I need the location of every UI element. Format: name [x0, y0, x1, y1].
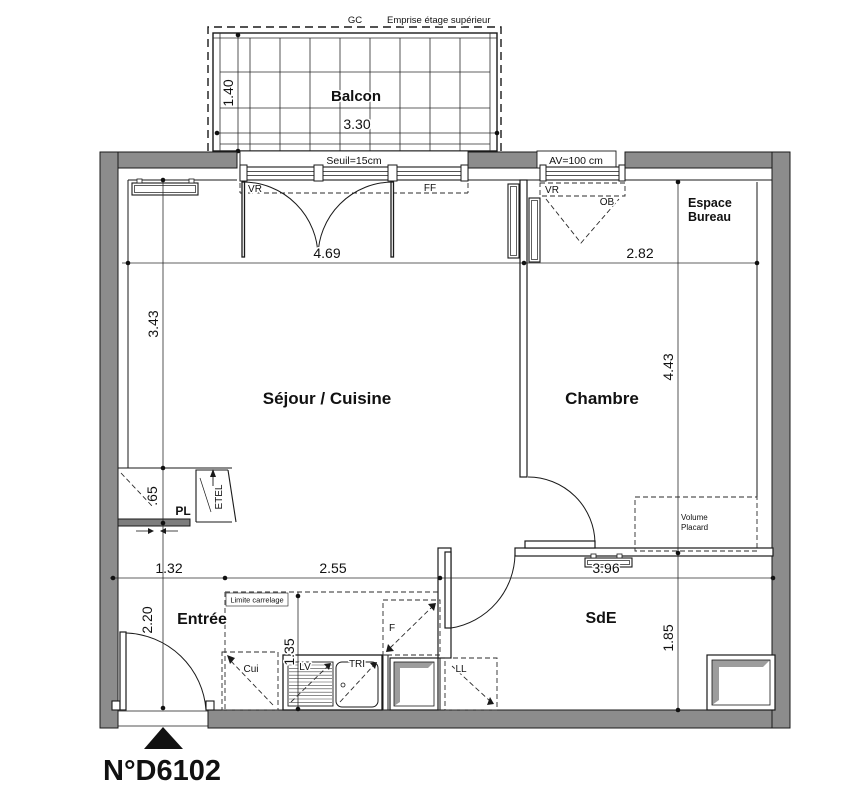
room-label-sde: SdE — [585, 610, 616, 627]
window-mullion — [388, 165, 397, 181]
seuil-label: Seuil=15cm — [326, 155, 381, 167]
dim-kitchen-depth: 1.35 — [281, 638, 297, 665]
emprise-label: Emprise étage supérieur — [387, 15, 491, 26]
volume-placard-label-2: Placard — [681, 523, 708, 532]
limite-carrelage-label: Limite carrelage — [230, 596, 283, 605]
dim-sde-width: 3.96 — [592, 560, 619, 576]
chambre-door-swing — [528, 477, 595, 543]
dim-balcony-depth: 1.40 — [220, 79, 236, 106]
interior-partitions — [383, 180, 773, 710]
dim-entree-height: 2.20 — [139, 606, 155, 633]
lv-label: LV — [299, 662, 311, 673]
plan-title: N°D6102 — [103, 755, 221, 787]
radiator-sejour-top — [132, 179, 198, 195]
closet-etel: ETEL — [196, 469, 236, 522]
floor-plan-drawing: GC Emprise étage supérieur 1.40 3.30 Bal… — [0, 0, 856, 800]
ll-label: LL — [455, 664, 467, 675]
dim-kitchen-width: 2.55 — [319, 560, 346, 576]
wall-right — [772, 152, 790, 728]
kitchen-fridge-zone: F — [383, 600, 440, 655]
entrance-door-leaf — [120, 632, 126, 710]
balcony-depth-dimension: 1.40 — [220, 33, 240, 154]
room-label-chambre: Chambre — [565, 389, 639, 408]
vr-chambre-label: VR — [545, 185, 559, 196]
radiator-chambre — [529, 198, 540, 262]
room-label-entree: Entrée — [177, 611, 227, 628]
dim-sejour-width: 4.69 — [313, 245, 340, 261]
gc-label: GC — [348, 15, 362, 26]
room-label-sejour-cuisine: Séjour / Cuisine — [263, 389, 391, 408]
window-mullion — [461, 165, 468, 181]
partition-kitchen-niche — [383, 655, 388, 710]
dim-chambre-height: 4.43 — [660, 353, 676, 380]
shower-tray — [707, 655, 775, 710]
dimension-chain-left: 3.43 .65 2.20 — [139, 178, 165, 711]
chambre-window: AV=100 cm VR OB — [537, 151, 625, 243]
dim-entree-width: 1.32 — [155, 560, 182, 576]
dimension-chain-right: 4.43 1.85 — [660, 180, 680, 713]
window-mullion — [540, 165, 546, 181]
cui-label: Cui — [243, 664, 258, 675]
wall-top-right — [625, 152, 773, 168]
balcony-width-dimension: 3.30 — [215, 116, 500, 135]
entrance-door-swing — [126, 633, 206, 710]
tri-label: TRI — [349, 659, 365, 670]
room-label-balcon: Balcon — [331, 88, 381, 105]
radiator-sejour-partition — [508, 184, 519, 258]
dimension-chain-top: 4.69 2.82 — [122, 245, 759, 265]
entrance-arrow — [144, 727, 183, 749]
partition-chambre-sde — [515, 548, 773, 556]
pl-label: PL — [175, 504, 190, 518]
window-mullion — [314, 165, 323, 181]
window-mullion — [619, 165, 625, 181]
chambre-door — [525, 477, 595, 548]
partition-sejour-chambre — [520, 180, 527, 477]
chambre-door-leaf — [525, 541, 595, 548]
room-label-espace-bureau-2: Bureau — [688, 210, 731, 224]
wall-left — [100, 152, 118, 728]
wall-bottom — [208, 710, 772, 728]
ob-label: OB — [600, 197, 615, 208]
dim-sde-height: 1.85 — [660, 624, 676, 651]
dim-chambre-width: 2.82 — [626, 245, 653, 261]
dim-balcony-width: 3.30 — [343, 116, 370, 132]
f-label: F — [389, 623, 395, 634]
sde-door-leaf — [445, 552, 451, 628]
pl-sliding-door — [118, 519, 190, 526]
volume-placard-zone: Volume Placard — [635, 497, 757, 551]
window-mullion — [240, 165, 247, 181]
kitchen-cui-zone: Cui — [222, 652, 278, 710]
sde-door-swing — [451, 554, 515, 628]
room-label-espace-bureau-1: Espace — [688, 196, 732, 210]
ff-label: FF — [424, 183, 436, 194]
sde-ll-zone: LL — [445, 658, 497, 710]
appliance-column — [390, 658, 438, 710]
dim-sejour-height: 3.43 — [145, 310, 161, 337]
volume-placard-label-1: Volume — [681, 513, 708, 522]
av-label: AV=100 cm — [549, 155, 603, 167]
dim-pl-depth: .65 — [144, 486, 160, 506]
etel-label: ETEL — [214, 484, 225, 509]
wall-top-middle — [468, 152, 540, 168]
wall-lining-lines — [128, 180, 772, 497]
vr-sejour-label: VR — [248, 184, 262, 195]
floor-plan-page: GC Emprise étage supérieur 1.40 3.30 Bal… — [0, 0, 856, 800]
sde-door — [445, 552, 515, 628]
wall-top-left — [100, 152, 237, 168]
